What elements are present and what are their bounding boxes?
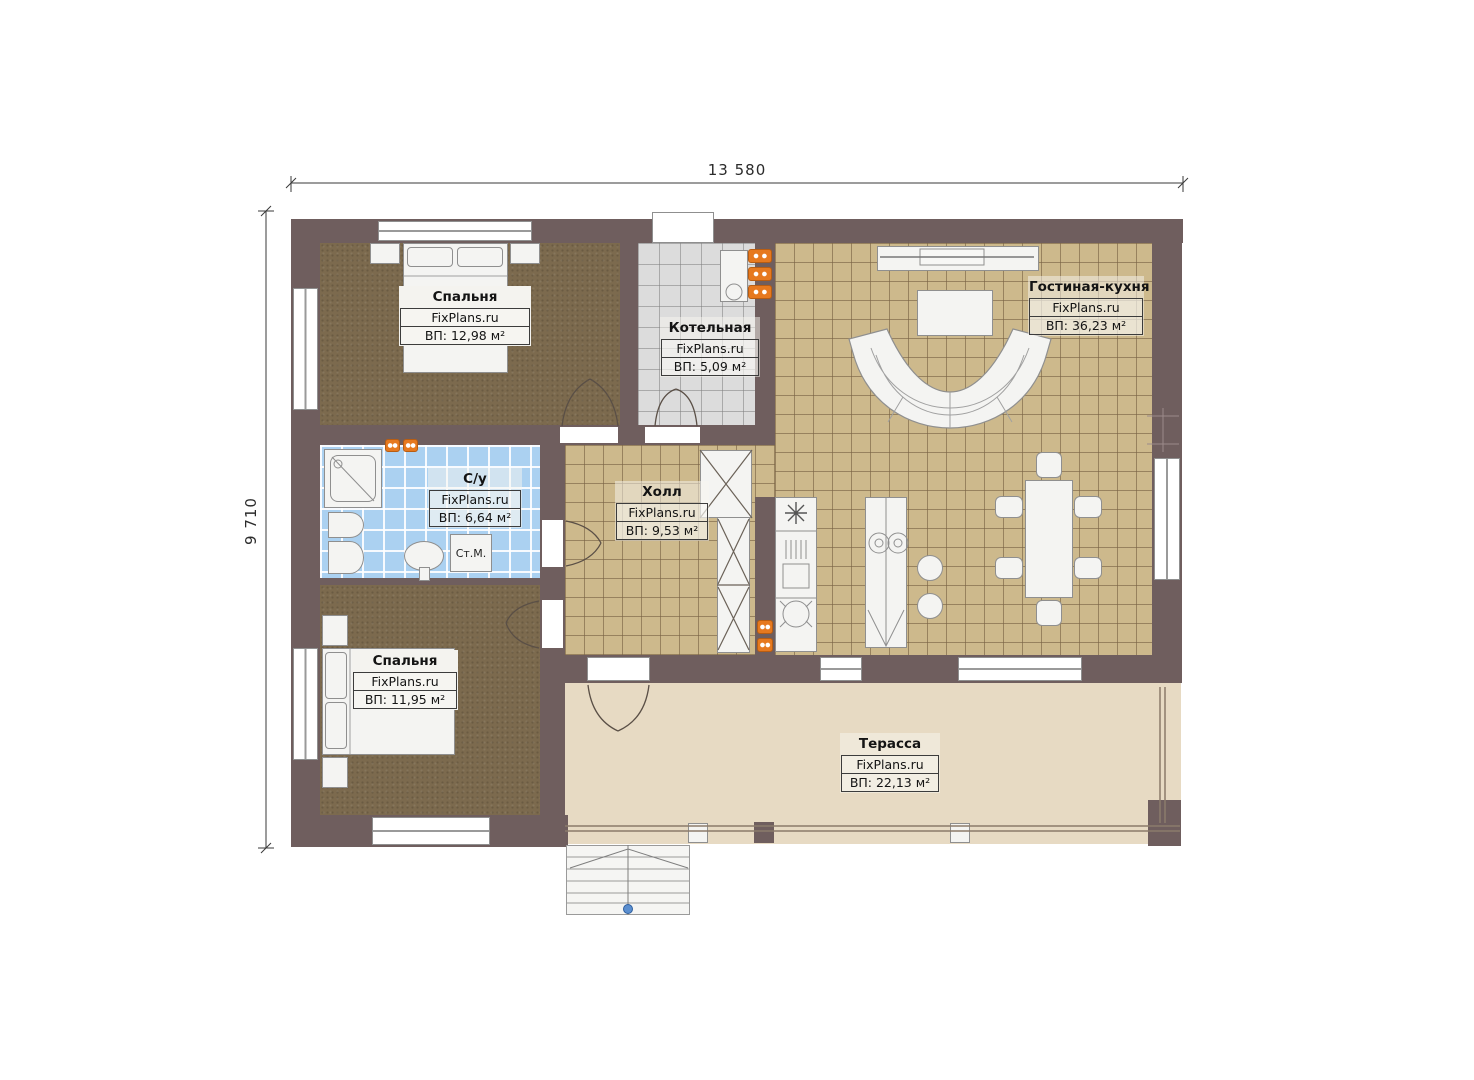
brand-label: FixPlans.ru bbox=[1029, 298, 1143, 317]
room-name: Терасса bbox=[841, 734, 939, 755]
window-bedroom2-bottom bbox=[372, 817, 490, 845]
window-bedroom2-left bbox=[293, 648, 318, 760]
room-label-terrace: Терасса FixPlans.ru ВП: 22,13 м² bbox=[840, 733, 940, 793]
wall-bedroom1-boiler bbox=[620, 243, 638, 425]
room-label-bathroom: С/у FixPlans.ru ВП: 6,64 м² bbox=[428, 468, 522, 528]
dimension-height-label: 9 710 bbox=[242, 486, 260, 556]
dining-chair-symbol bbox=[1074, 557, 1102, 579]
window-bedroom1-top bbox=[378, 221, 532, 241]
room-area: ВП: 36,23 м² bbox=[1029, 317, 1143, 335]
window-bedroom1-left bbox=[293, 288, 318, 410]
terrace-rail-post bbox=[754, 822, 774, 843]
pillow-symbol bbox=[325, 652, 347, 699]
nightstand-symbol bbox=[322, 615, 348, 646]
brand-label: FixPlans.ru bbox=[429, 490, 521, 509]
room-label-boiler-room: Котельная FixPlans.ru ВП: 5,09 м² bbox=[660, 317, 760, 377]
washing-machine-symbol: Ст.М. bbox=[450, 534, 492, 572]
brand-label: FixPlans.ru bbox=[661, 339, 759, 358]
room-name: Спальня bbox=[353, 651, 457, 672]
hall-living-passage-floor bbox=[755, 445, 775, 497]
bar-stool-symbol bbox=[917, 555, 943, 581]
room-name: Холл bbox=[616, 482, 708, 503]
terrace-corner-post bbox=[1148, 800, 1181, 846]
window-living-bottom-1 bbox=[820, 657, 862, 681]
brand-label: FixPlans.ru bbox=[841, 755, 939, 774]
entrance-stairs bbox=[566, 845, 690, 915]
coffee-table-symbol bbox=[917, 290, 993, 336]
radiator-symbol bbox=[748, 285, 772, 299]
radiator-symbol bbox=[748, 249, 772, 263]
boiler-symbol bbox=[720, 250, 748, 302]
door-boiler-exterior bbox=[652, 212, 714, 243]
bar-stool-symbol bbox=[917, 593, 943, 619]
floor-plan: Ст.М. bbox=[0, 0, 1474, 1080]
shower-tray-symbol bbox=[330, 455, 376, 502]
room-area: ВП: 22,13 м² bbox=[841, 774, 939, 792]
room-area: ВП: 5,09 м² bbox=[661, 358, 759, 376]
room-area: ВП: 9,53 м² bbox=[616, 522, 708, 540]
window-living-bottom-2 bbox=[958, 657, 1082, 681]
pillow-symbol bbox=[457, 247, 503, 267]
nightstand-symbol bbox=[370, 243, 400, 264]
dining-chair-symbol bbox=[1074, 496, 1102, 518]
radiator-symbol bbox=[385, 439, 400, 452]
washing-machine-label: Ст.М. bbox=[456, 547, 487, 560]
door-opening-boiler bbox=[645, 427, 700, 443]
toilet-symbol bbox=[328, 541, 364, 574]
radiator-symbol bbox=[757, 620, 773, 634]
room-label-living-kitchen: Гостиная-кухня FixPlans.ru ВП: 36,23 м² bbox=[1028, 276, 1144, 336]
room-name: Гостиная-кухня bbox=[1029, 277, 1143, 298]
toilet-symbol bbox=[328, 512, 364, 538]
kitchen-island-symbol bbox=[865, 497, 907, 648]
brand-label: FixPlans.ru bbox=[400, 308, 530, 327]
dining-chair-symbol bbox=[995, 496, 1023, 518]
room-label-bedroom-1: Спальня FixPlans.ru ВП: 12,98 м² bbox=[399, 286, 531, 346]
dining-chair-symbol bbox=[1036, 452, 1062, 478]
dining-chair-symbol bbox=[995, 557, 1023, 579]
room-name: С/у bbox=[429, 469, 521, 490]
wall-bathroom-bedroom2 bbox=[320, 578, 540, 585]
door-opening-bathroom bbox=[542, 520, 563, 567]
terrace-pier-2 bbox=[950, 823, 970, 843]
terrace-pier-1 bbox=[688, 823, 708, 843]
window-living-right bbox=[1154, 458, 1180, 580]
radiator-symbol bbox=[748, 267, 772, 281]
door-entrance bbox=[587, 657, 650, 681]
dining-table-symbol bbox=[1025, 480, 1073, 598]
nightstand-symbol bbox=[322, 757, 348, 788]
sink-pedestal-symbol bbox=[419, 567, 430, 581]
closet-cabinet-symbol bbox=[717, 517, 750, 653]
radiator-symbol bbox=[403, 439, 418, 452]
room-area: ВП: 11,95 м² bbox=[353, 691, 457, 709]
pillow-symbol bbox=[407, 247, 453, 267]
dimension-width-label: 13 580 bbox=[667, 161, 807, 179]
room-name: Котельная bbox=[661, 318, 759, 339]
tv-stand-symbol bbox=[877, 246, 1039, 271]
brand-label: FixPlans.ru bbox=[616, 503, 708, 522]
door-opening-bedroom2 bbox=[542, 600, 563, 648]
kitchen-counter-symbol bbox=[775, 497, 817, 652]
nightstand-symbol bbox=[510, 243, 540, 264]
pillow-symbol bbox=[325, 702, 347, 749]
room-area: ВП: 6,64 м² bbox=[429, 509, 521, 527]
door-opening-bedroom1 bbox=[560, 427, 618, 443]
radiator-symbol bbox=[757, 638, 773, 652]
room-area: ВП: 12,98 м² bbox=[400, 327, 530, 345]
room-label-hall: Холл FixPlans.ru ВП: 9,53 м² bbox=[615, 481, 709, 541]
room-name: Спальня bbox=[400, 287, 530, 308]
room-label-bedroom-2: Спальня FixPlans.ru ВП: 11,95 м² bbox=[352, 650, 458, 710]
outer-wall-right bbox=[1152, 219, 1182, 683]
brand-label: FixPlans.ru bbox=[353, 672, 457, 691]
dining-chair-symbol bbox=[1036, 600, 1062, 626]
